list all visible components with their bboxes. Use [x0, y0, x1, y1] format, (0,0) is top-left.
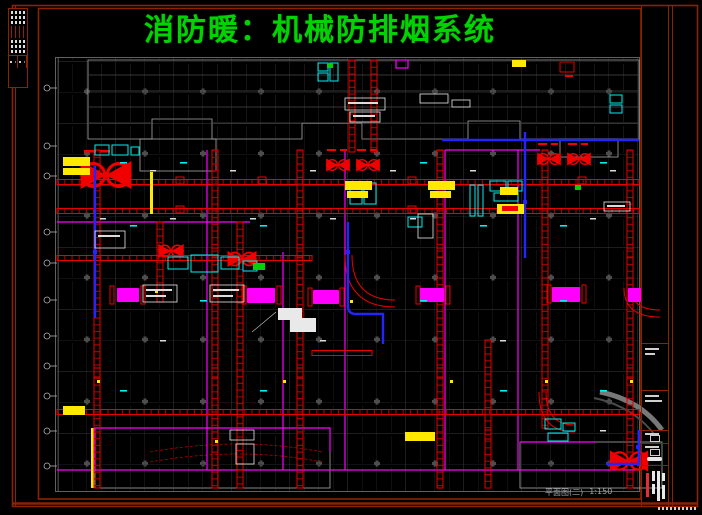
revision-row	[11, 16, 25, 19]
cad-drawing	[0, 0, 702, 515]
axis-bubbles	[44, 85, 57, 469]
title-block-text	[645, 446, 659, 448]
smoke-vent	[628, 288, 641, 302]
stamp-bar	[652, 484, 655, 494]
caption-text: 平面图(二)	[545, 487, 583, 498]
stamp-bar	[662, 473, 665, 481]
revision-row	[11, 45, 25, 48]
title-block-outer-line	[672, 5, 673, 507]
title-block-divider	[642, 465, 668, 466]
smoke-vent	[247, 288, 275, 303]
revision-row	[11, 40, 25, 43]
title-block-text	[645, 400, 662, 402]
stamp-bar	[662, 485, 665, 499]
revision-grid	[11, 26, 25, 38]
title-block-text	[645, 348, 659, 350]
title-block	[641, 5, 669, 507]
revision-row	[11, 50, 25, 53]
smoke-vent	[420, 288, 444, 302]
smoke-vent	[313, 290, 339, 304]
caption-scale: 1:150	[589, 487, 612, 498]
revision-row	[11, 21, 25, 24]
revision-cell	[9, 55, 27, 68]
revision-row	[11, 11, 25, 14]
title-block-divider	[642, 443, 668, 444]
title-block-text	[645, 395, 659, 397]
stamp-red-text	[646, 473, 649, 497]
title-block-box	[650, 435, 660, 442]
title-block-scalebar	[647, 457, 662, 461]
corner-fine-print	[658, 507, 696, 510]
drawing-caption: 平面图(二) 1:150	[545, 487, 612, 498]
cad-viewer: 消防暖：机械防排烟系统 平面图(二) 1:150	[0, 0, 702, 515]
title-block-divider	[642, 390, 668, 391]
revision-table	[8, 8, 28, 88]
title-block-divider	[642, 343, 668, 344]
title-block-divider	[642, 430, 668, 431]
stamp-bar	[652, 471, 655, 481]
smoke-vent	[117, 288, 139, 302]
drawing-title: 消防暖：机械防排烟系统	[110, 5, 530, 49]
title-block-box	[650, 449, 660, 456]
title-block-text	[645, 353, 655, 355]
stamp-bar	[657, 471, 660, 501]
smoke-vent	[552, 287, 580, 302]
